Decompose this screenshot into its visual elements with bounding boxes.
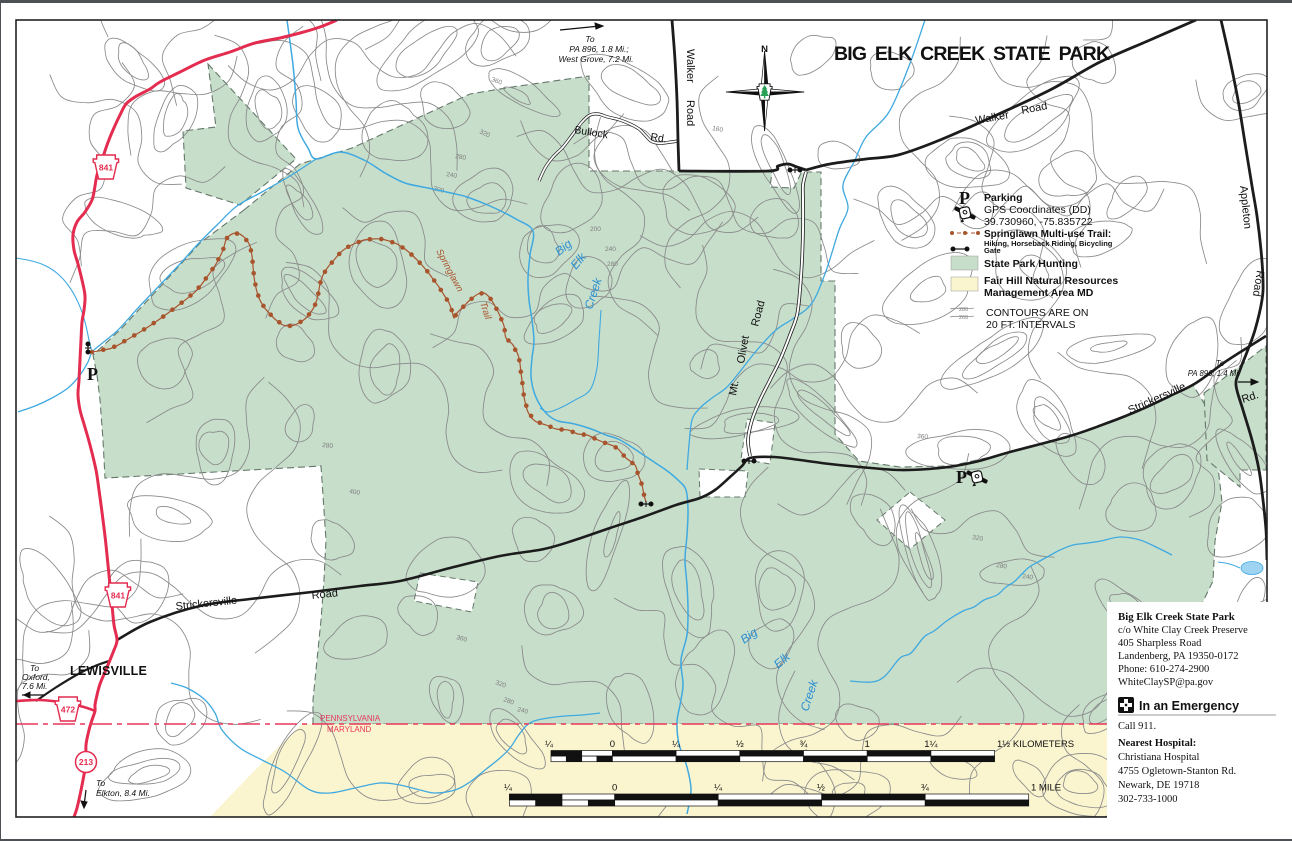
svg-text:½: ½: [736, 739, 744, 750]
svg-text:280: 280: [959, 307, 968, 313]
svg-text:c/o White Clay Creek Preserve: c/o White Clay Creek Preserve: [1118, 625, 1248, 636]
svg-text:Walker: Walker: [974, 109, 1010, 127]
svg-text:Phone: 610-274-2900: Phone: 610-274-2900: [1118, 664, 1209, 675]
svg-text:Call 911.: Call 911.: [1118, 721, 1156, 732]
svg-text:LEWISVILLE: LEWISVILLE: [70, 664, 147, 678]
svg-text:280: 280: [322, 442, 334, 450]
svg-text:841: 841: [99, 163, 113, 173]
svg-text:To: To: [1216, 359, 1225, 368]
svg-text:1¼: 1¼: [924, 739, 938, 750]
svg-text:39.730960, -75.835722: 39.730960, -75.835722: [984, 216, 1093, 228]
svg-text:West Grove, 7.2 Mi.: West Grove, 7.2 Mi.: [559, 54, 634, 64]
svg-text:280: 280: [607, 261, 618, 268]
svg-text:405 Sharpless Road: 405 Sharpless Road: [1118, 638, 1202, 649]
svg-text:¼: ¼: [714, 783, 723, 794]
svg-text:P: P: [87, 364, 98, 384]
svg-text:213: 213: [79, 757, 93, 767]
svg-text:MARYLAND: MARYLAND: [327, 725, 372, 734]
svg-text:Newark, DE 19718: Newark, DE 19718: [1118, 780, 1199, 791]
svg-text:P: P: [956, 467, 967, 487]
svg-text:Big Elk Creek State Park: Big Elk Creek State Park: [1118, 611, 1235, 623]
svg-text:Parking: Parking: [984, 192, 1023, 204]
svg-text:Fair Hill Natural Resources: Fair Hill Natural Resources: [984, 275, 1118, 287]
svg-text:BIG ELK CREEK STATE PARK: BIG ELK CREEK STATE PARK: [834, 43, 1110, 65]
svg-text:1½ KILOMETERS: 1½ KILOMETERS: [997, 739, 1074, 750]
svg-text:200: 200: [590, 226, 601, 233]
svg-text:20 FT. INTERVALS: 20 FT. INTERVALS: [986, 319, 1075, 331]
svg-text:260: 260: [959, 315, 968, 321]
svg-text:¼: ¼: [672, 739, 681, 750]
svg-text:State Park Hunting: State Park Hunting: [984, 258, 1078, 270]
svg-text:Hiking, Horseback Riding, Bicy: Hiking, Horseback Riding, Bicycling: [984, 239, 1113, 248]
svg-text:P: P: [959, 188, 970, 208]
svg-text:Gate: Gate: [984, 246, 1001, 255]
svg-text:CONTOURS ARE ON: CONTOURS ARE ON: [986, 307, 1089, 319]
svg-text:472: 472: [61, 705, 75, 715]
svg-text:Walker: Walker: [684, 49, 696, 83]
svg-text:¼: ¼: [545, 739, 554, 750]
svg-text:In an Emergency: In an Emergency: [1139, 699, 1239, 713]
svg-text:PENNSYLVANIA: PENNSYLVANIA: [320, 714, 381, 723]
svg-text:Appleton: Appleton: [1237, 185, 1253, 229]
svg-text:4755 Ogletown-Stanton Rd.: 4755 Ogletown-Stanton Rd.: [1118, 766, 1236, 777]
svg-text:To: To: [96, 778, 105, 788]
svg-text:7.6 Mi.: 7.6 Mi.: [22, 681, 48, 691]
svg-text:Christiana Hospital: Christiana Hospital: [1118, 752, 1199, 763]
svg-text:Elkton, 8.4 Mi.: Elkton, 8.4 Mi.: [96, 788, 150, 798]
svg-text:240: 240: [605, 246, 616, 253]
svg-text:360: 360: [490, 76, 503, 86]
svg-text:Road: Road: [684, 100, 696, 126]
svg-text:0: 0: [610, 739, 615, 750]
svg-text:¾: ¾: [921, 783, 930, 794]
svg-text:To: To: [585, 34, 594, 44]
svg-text:½: ½: [817, 783, 825, 794]
svg-text:WhiteClaySP@pa.gov: WhiteClaySP@pa.gov: [1118, 677, 1214, 688]
svg-text:GPS Coordinates (DD): GPS Coordinates (DD): [984, 204, 1091, 216]
svg-text:1: 1: [865, 739, 870, 750]
svg-text:0: 0: [612, 783, 617, 794]
svg-text:PA 896, 1.8 Mi.;: PA 896, 1.8 Mi.;: [569, 44, 629, 54]
svg-text:160: 160: [712, 125, 724, 134]
svg-text:1 MILE: 1 MILE: [1031, 783, 1061, 794]
svg-text:841: 841: [111, 591, 125, 601]
svg-text:¼: ¼: [504, 783, 513, 794]
svg-text:Landenberg, PA 19350-0172: Landenberg, PA 19350-0172: [1118, 651, 1238, 662]
svg-text:Rd.: Rd.: [650, 131, 668, 145]
svg-text:¾: ¾: [800, 739, 809, 750]
svg-text:PA 896, 1.4 Mi.: PA 896, 1.4 Mi.: [1188, 369, 1240, 378]
svg-text:Management Area MD: Management Area MD: [984, 287, 1094, 299]
svg-text:302-733-1000: 302-733-1000: [1118, 794, 1178, 805]
svg-text:360: 360: [917, 433, 929, 441]
svg-text:Nearest Hospital:: Nearest Hospital:: [1118, 738, 1196, 749]
